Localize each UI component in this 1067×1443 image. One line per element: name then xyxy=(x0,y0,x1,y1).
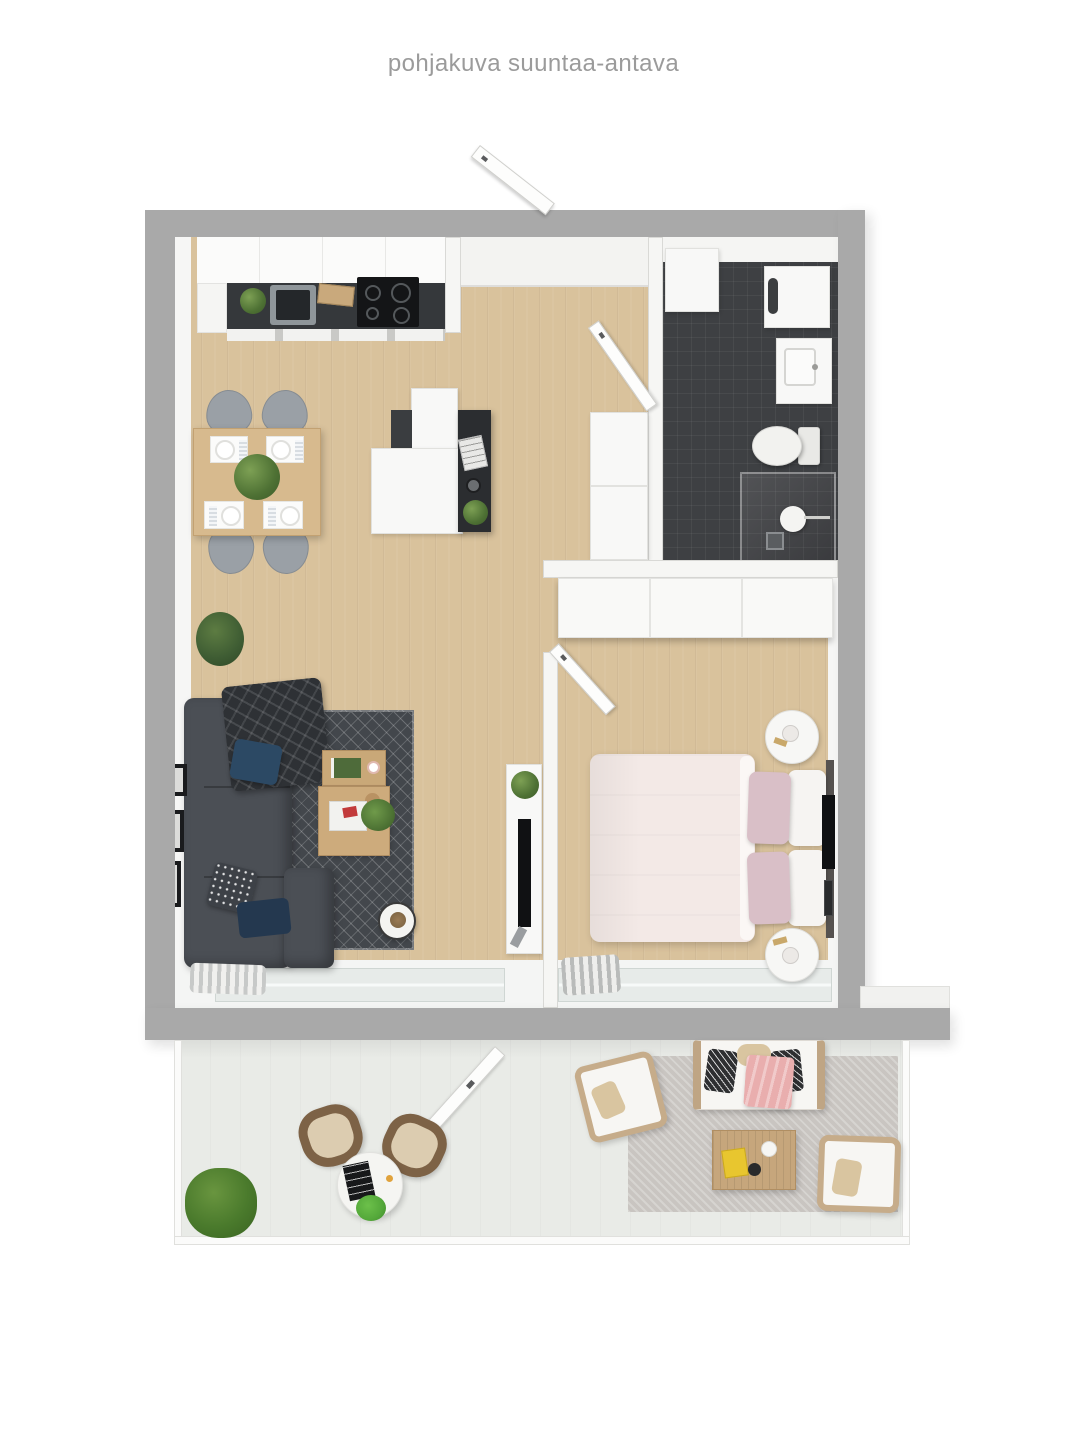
cup xyxy=(761,1141,777,1157)
armchair-pillow xyxy=(831,1158,863,1198)
outer-wall-bottom xyxy=(145,1008,950,1040)
book xyxy=(331,758,361,778)
sink-bowl xyxy=(276,290,310,320)
living-room-plant xyxy=(196,612,244,666)
tv-bench xyxy=(506,764,542,954)
dark-pot xyxy=(748,1163,761,1176)
peninsula-dark-panel xyxy=(391,410,412,452)
peninsula-counter xyxy=(371,448,463,534)
bedroom-tv xyxy=(822,795,835,869)
nightstand xyxy=(765,928,819,982)
entry-door-leaf xyxy=(471,145,555,215)
balcony-railing-bottom xyxy=(174,1236,910,1245)
burner xyxy=(365,285,381,301)
bench-plant xyxy=(511,771,539,799)
table-plant xyxy=(356,1195,386,1221)
plate xyxy=(221,506,241,526)
balcony-railing-right xyxy=(902,1040,910,1244)
shelf-jar xyxy=(466,478,481,493)
pink-blanket xyxy=(743,1054,795,1109)
bedroom-console xyxy=(824,880,833,916)
napkin xyxy=(209,506,217,526)
napkin xyxy=(295,440,303,460)
burner xyxy=(393,307,410,324)
sink-faucet xyxy=(812,364,818,370)
toilet-bowl xyxy=(752,426,802,466)
balcony-table xyxy=(337,1152,403,1218)
burner xyxy=(391,283,411,303)
kitchen-tall-cabinet xyxy=(197,283,227,333)
floorplan xyxy=(0,0,1067,1443)
living-room-curtain xyxy=(189,963,266,996)
plate xyxy=(271,440,291,460)
kitchen-sink xyxy=(270,285,316,325)
balcony-bush xyxy=(185,1168,257,1238)
coffee-table-small xyxy=(322,750,386,786)
pillow-white xyxy=(788,850,826,926)
gold-item xyxy=(772,936,787,945)
coffee-table-large xyxy=(318,786,390,856)
hall-wardrobe xyxy=(590,412,648,560)
pillow-pink xyxy=(747,771,791,844)
sofa-chaise xyxy=(284,868,334,968)
kitchen-hall-wall xyxy=(445,237,461,333)
yellow-book xyxy=(721,1147,749,1178)
dry-plant xyxy=(390,912,406,928)
bed-duvet xyxy=(590,754,755,942)
outdoor-armchair xyxy=(817,1135,902,1214)
shelf-plant xyxy=(463,500,488,525)
bathroom-cabinet xyxy=(665,248,719,312)
place-setting xyxy=(204,501,244,529)
pillow-pink xyxy=(747,851,791,924)
outer-wall-left xyxy=(145,210,175,1040)
balcony-railing-left xyxy=(174,1040,182,1244)
nightstand xyxy=(765,710,819,764)
armchair-pillow xyxy=(590,1079,628,1121)
bedroom-left-wall xyxy=(543,652,558,1008)
orange-fruit xyxy=(386,1175,393,1182)
cooktop xyxy=(357,277,419,327)
wall-ledge-right xyxy=(860,986,950,1010)
outer-wall-top xyxy=(145,210,865,237)
cutting-board xyxy=(317,283,355,307)
bed xyxy=(590,752,830,944)
shower-arm xyxy=(804,516,830,519)
sofa-pillow-navy2 xyxy=(236,897,291,938)
outdoor-pillow-patterned xyxy=(703,1048,739,1094)
bedroom-wardrobes xyxy=(558,578,833,638)
peninsula-upper-cabinet xyxy=(411,388,458,452)
sofa-pillow-navy xyxy=(229,738,283,786)
nightstand-lamp xyxy=(782,947,799,964)
bedroom-curtain xyxy=(561,954,622,996)
remote xyxy=(510,926,527,948)
pillow-white xyxy=(788,770,826,846)
door-handle xyxy=(481,155,488,162)
shower-head xyxy=(780,506,806,532)
door-handle xyxy=(560,654,567,661)
table-plant xyxy=(361,799,395,831)
washing-machine-door xyxy=(768,278,778,314)
bedroom-top-wall xyxy=(543,560,838,578)
dining-centerpiece-plant xyxy=(234,454,280,500)
kitchen-plant xyxy=(240,288,266,314)
napkin xyxy=(268,506,276,526)
place-setting xyxy=(263,501,303,529)
door-handle xyxy=(466,1080,475,1089)
outdoor-coffee-table xyxy=(712,1130,796,1190)
door-handle xyxy=(598,332,605,339)
shower-drain xyxy=(766,532,784,550)
tv xyxy=(518,819,531,927)
plate xyxy=(215,440,235,460)
kitchen-base-cabinets xyxy=(227,329,445,341)
cup xyxy=(367,761,380,774)
side-table xyxy=(378,902,416,940)
entry-threshold xyxy=(461,237,648,287)
plate xyxy=(280,506,300,526)
outer-wall-right xyxy=(838,210,865,1040)
burner xyxy=(366,307,379,320)
